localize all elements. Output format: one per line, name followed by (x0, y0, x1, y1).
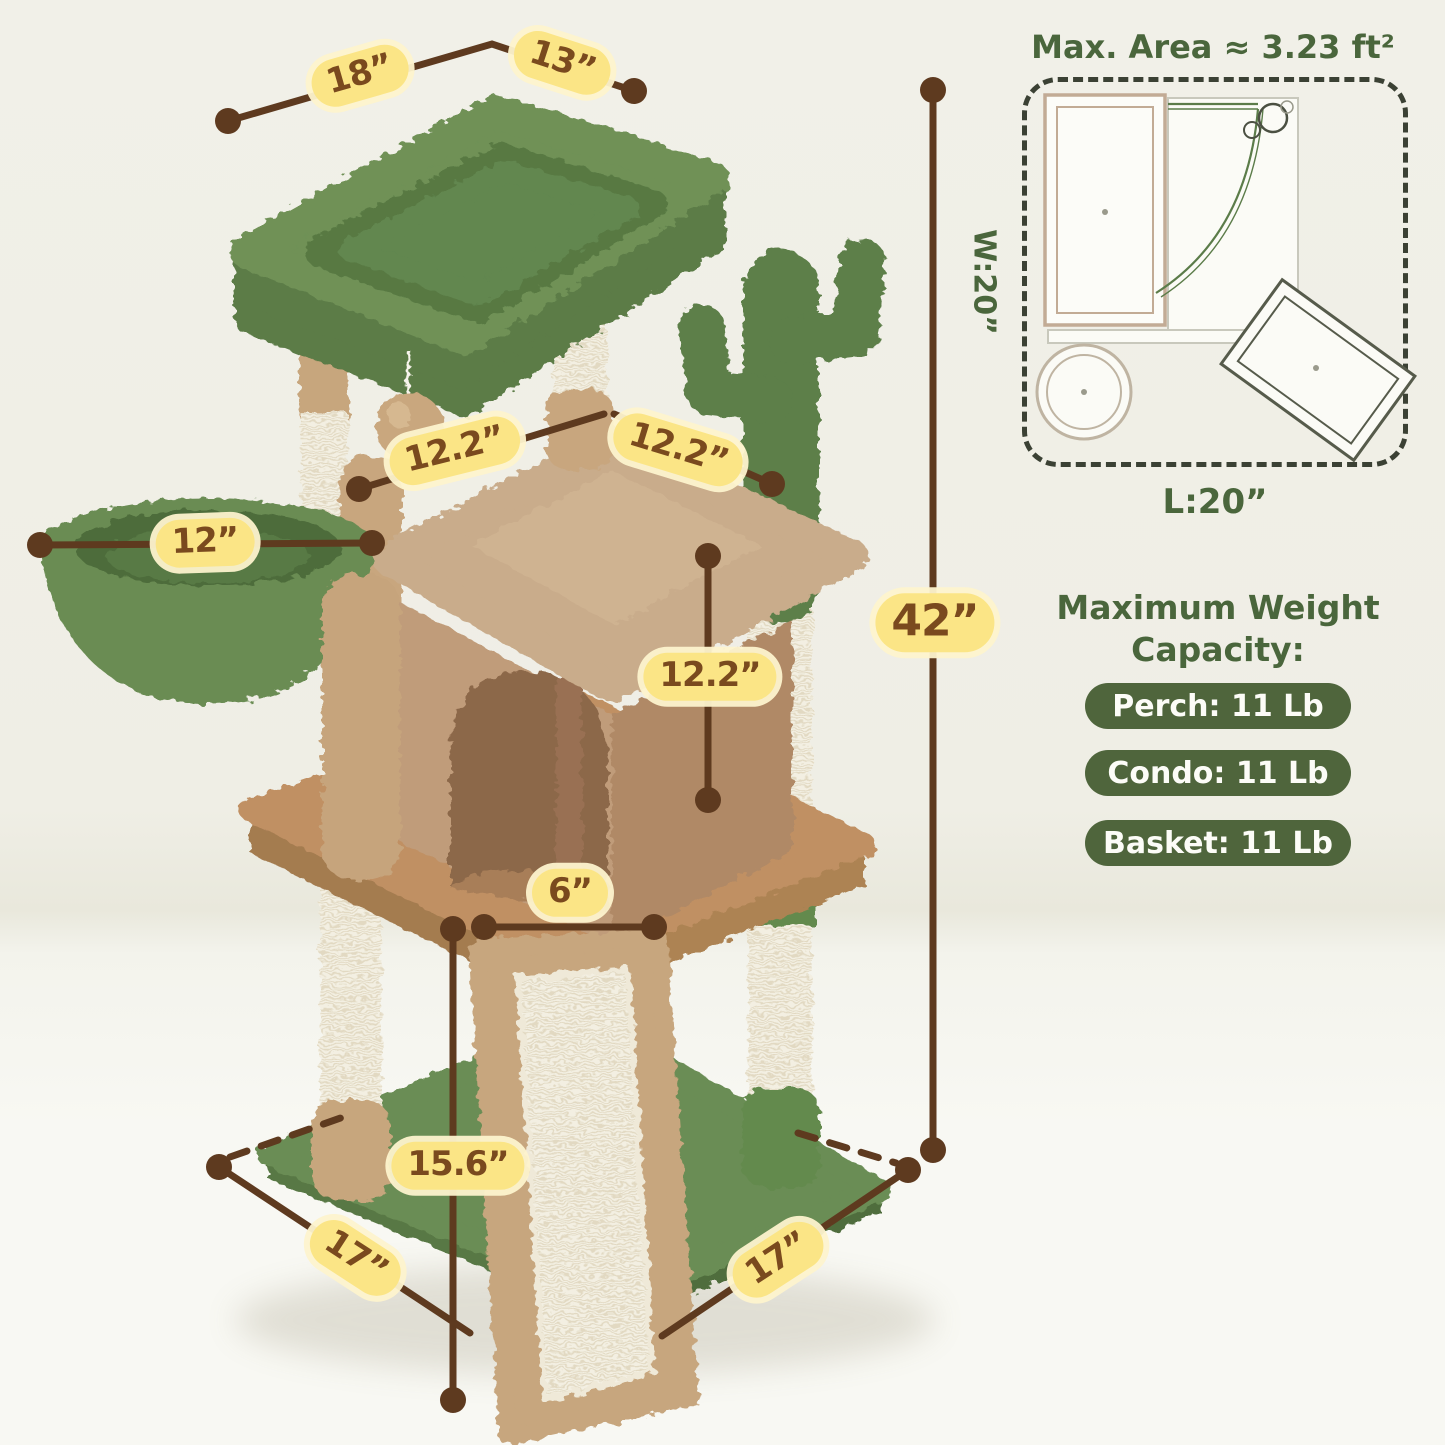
dim-pill-total-height: 42” (875, 593, 994, 652)
dim-pill-basket-diameter: 12” (155, 517, 255, 569)
dim-pill-ramp-length: 15.6” (391, 1142, 524, 1190)
dimension-lines (0, 0, 1445, 1445)
dim-pill-ramp-top-width: 6” (532, 869, 608, 917)
dim-pill-condo-height: 12.2” (643, 653, 776, 701)
dim-line-ramp-top (471, 914, 667, 940)
infographic-canvas: 18” 13” 12” 12.2” 12.2” 12.2” 42” 6” 15.… (0, 0, 1445, 1445)
